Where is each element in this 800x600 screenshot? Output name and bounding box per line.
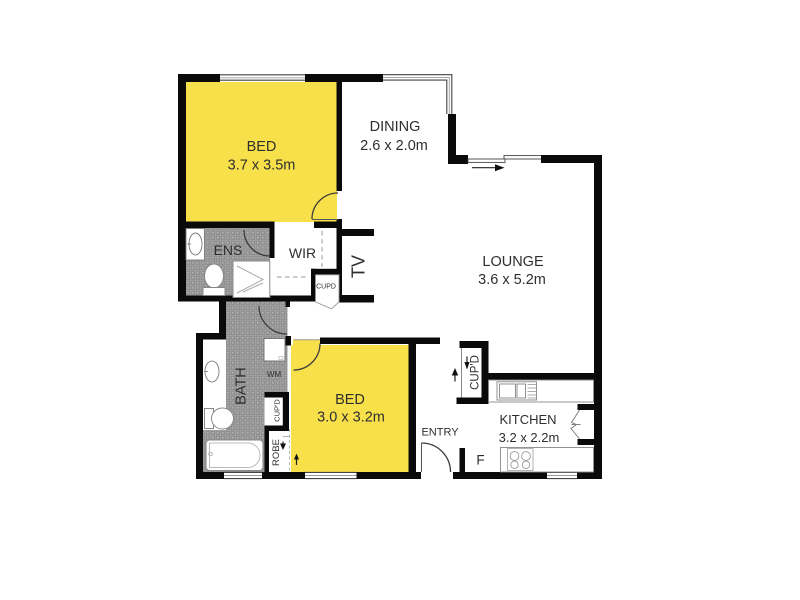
svg-text:DINING: DINING: [370, 119, 421, 135]
svg-text:LOUNGE: LOUNGE: [482, 254, 544, 270]
svg-text:WM: WM: [267, 370, 282, 379]
svg-text:3.6 x 5.2m: 3.6 x 5.2m: [478, 272, 546, 288]
svg-text:3.2 x 2.2m: 3.2 x 2.2m: [499, 430, 560, 445]
svg-text:CUP'D: CUP'D: [272, 399, 281, 422]
svg-text:CUPD: CUPD: [316, 284, 336, 291]
svg-text:F: F: [476, 453, 484, 468]
svg-text:WIR: WIR: [289, 245, 316, 261]
svg-text:BED: BED: [247, 139, 277, 155]
svg-text:3.7 x 3.5m: 3.7 x 3.5m: [228, 158, 296, 174]
svg-text:BED: BED: [335, 392, 365, 408]
svg-text:ROBE: ROBE: [271, 439, 282, 466]
svg-text:CUP'D: CUP'D: [470, 355, 482, 390]
svg-text:BATH: BATH: [234, 367, 250, 405]
svg-text:ENTRY: ENTRY: [421, 427, 459, 439]
svg-text:3.0 x 3.2m: 3.0 x 3.2m: [317, 410, 385, 426]
svg-text:2.6 x 2.0m: 2.6 x 2.0m: [360, 138, 428, 154]
svg-text:TV: TV: [349, 255, 369, 278]
svg-text:ENS: ENS: [214, 242, 243, 258]
svg-text:KITCHEN: KITCHEN: [499, 412, 556, 427]
